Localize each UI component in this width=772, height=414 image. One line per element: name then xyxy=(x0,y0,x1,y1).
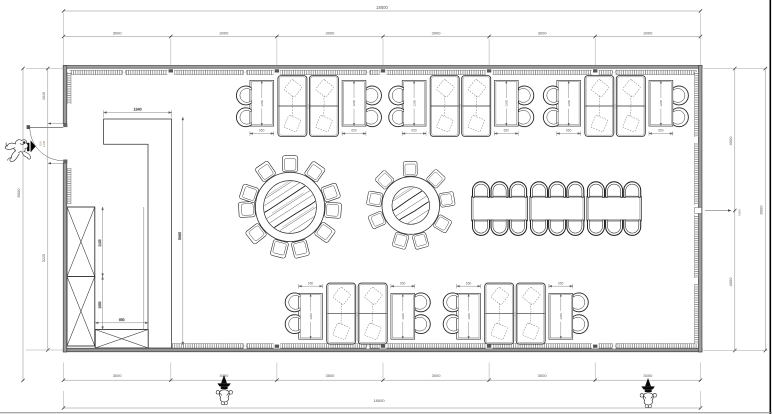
svg-text:1200: 1200 xyxy=(307,103,310,109)
svg-text:1200: 1200 xyxy=(260,100,264,107)
svg-text:1200: 1200 xyxy=(614,103,617,109)
svg-text:3000: 3000 xyxy=(538,373,548,378)
svg-text:1640: 1640 xyxy=(42,92,46,100)
svg-text:650: 650 xyxy=(466,281,472,285)
svg-text:1200: 1200 xyxy=(467,313,471,320)
svg-text:650: 650 xyxy=(558,281,564,285)
svg-text:3000: 3000 xyxy=(432,373,442,378)
svg-text:1200: 1200 xyxy=(356,311,359,317)
svg-text:1200: 1200 xyxy=(412,100,416,107)
svg-text:4000: 4000 xyxy=(728,277,733,287)
svg-text:8000: 8000 xyxy=(738,209,742,216)
svg-text:3000: 3000 xyxy=(113,30,123,35)
svg-text:5985: 5985 xyxy=(178,232,182,240)
svg-text:3000: 3000 xyxy=(325,30,335,35)
svg-text:3000: 3000 xyxy=(113,373,123,378)
svg-text:4000: 4000 xyxy=(728,136,733,146)
svg-text:3000: 3000 xyxy=(219,30,229,35)
svg-text:1200: 1200 xyxy=(514,311,517,317)
svg-text:3500: 3500 xyxy=(325,373,335,378)
svg-text:8000: 8000 xyxy=(16,188,21,198)
svg-text:18000: 18000 xyxy=(373,398,385,403)
svg-text:650: 650 xyxy=(411,129,417,133)
svg-text:1200: 1200 xyxy=(401,313,405,320)
svg-text:18000: 18000 xyxy=(376,5,388,10)
svg-text:3000: 3000 xyxy=(432,30,442,35)
svg-text:3000: 3000 xyxy=(538,30,548,35)
svg-text:650: 650 xyxy=(308,281,314,285)
svg-text:650: 650 xyxy=(351,129,357,133)
svg-text:650: 650 xyxy=(400,281,406,285)
svg-text:1200: 1200 xyxy=(505,100,509,107)
svg-text:650: 650 xyxy=(504,129,510,133)
svg-text:1200: 1200 xyxy=(567,100,571,107)
svg-text:950: 950 xyxy=(119,318,125,322)
svg-text:1135: 1135 xyxy=(42,140,46,147)
svg-text:1200: 1200 xyxy=(459,103,462,109)
svg-text:1200: 1200 xyxy=(352,100,356,107)
svg-text:1340: 1340 xyxy=(134,108,142,112)
svg-text:650: 650 xyxy=(259,129,265,133)
svg-text:3000: 3000 xyxy=(643,30,653,35)
svg-text:3000: 3000 xyxy=(643,373,653,378)
svg-text:1200: 1200 xyxy=(559,313,563,320)
svg-text:8000: 8000 xyxy=(758,205,763,215)
svg-text:650: 650 xyxy=(658,129,664,133)
svg-text:2135: 2135 xyxy=(98,239,102,246)
svg-text:1200: 1200 xyxy=(659,100,663,107)
svg-text:1950: 1950 xyxy=(98,301,102,308)
svg-text:1200: 1200 xyxy=(309,313,313,320)
svg-text:650: 650 xyxy=(566,129,572,133)
svg-text:5225: 5225 xyxy=(42,254,46,262)
